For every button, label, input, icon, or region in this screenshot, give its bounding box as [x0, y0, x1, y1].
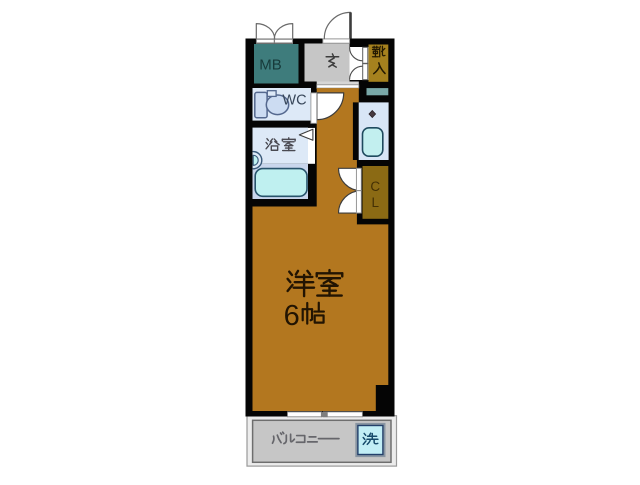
svg-text:C: C	[370, 179, 380, 194]
svg-text:6: 6	[284, 300, 300, 332]
svg-text:WC: WC	[282, 93, 306, 109]
svg-text:L: L	[372, 195, 380, 210]
svg-text:MB: MB	[259, 57, 282, 74]
